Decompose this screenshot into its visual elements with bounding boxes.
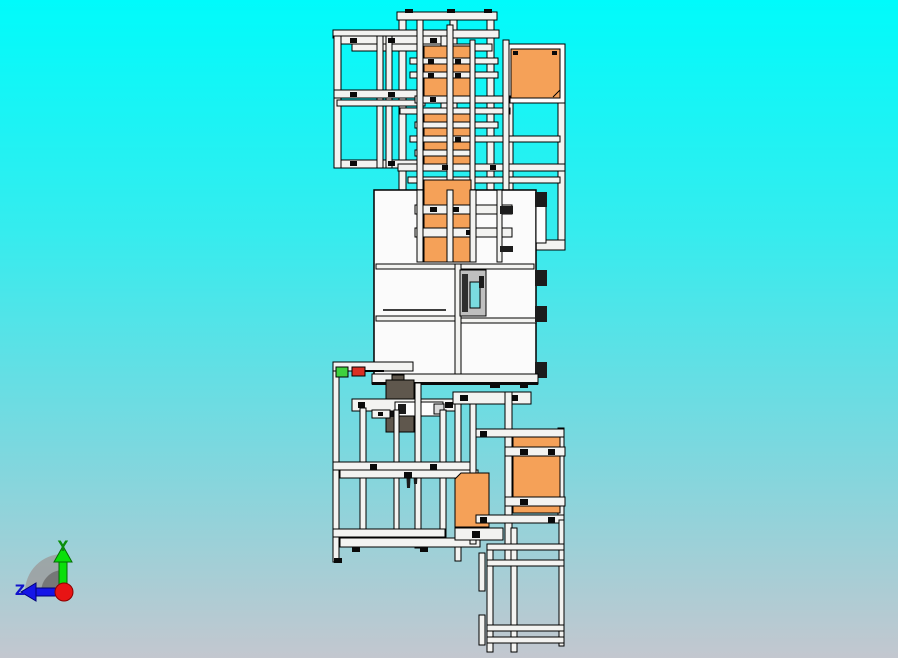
cabinet-vent-lower (500, 246, 513, 252)
orange-panel-top-right[interactable] (511, 49, 560, 98)
cabinet-hinge-3[interactable] (535, 306, 547, 322)
z-axis-label: Z (15, 583, 25, 599)
cabinet-vent-upper (500, 206, 513, 214)
indicator-light-red[interactable] (352, 367, 365, 376)
cabinet-hinge-1[interactable] (535, 192, 547, 207)
cabinet-mechanism[interactable] (460, 270, 486, 316)
origin-sphere (55, 583, 73, 601)
y-axis-label: Y (57, 539, 69, 555)
main-cabinet[interactable] (372, 180, 547, 388)
cad-viewport[interactable]: Y Z (0, 0, 898, 658)
indicator-light-green[interactable] (336, 367, 348, 377)
model-canvas[interactable]: Y Z (0, 0, 898, 658)
cabinet-hinge-2[interactable] (535, 270, 547, 286)
